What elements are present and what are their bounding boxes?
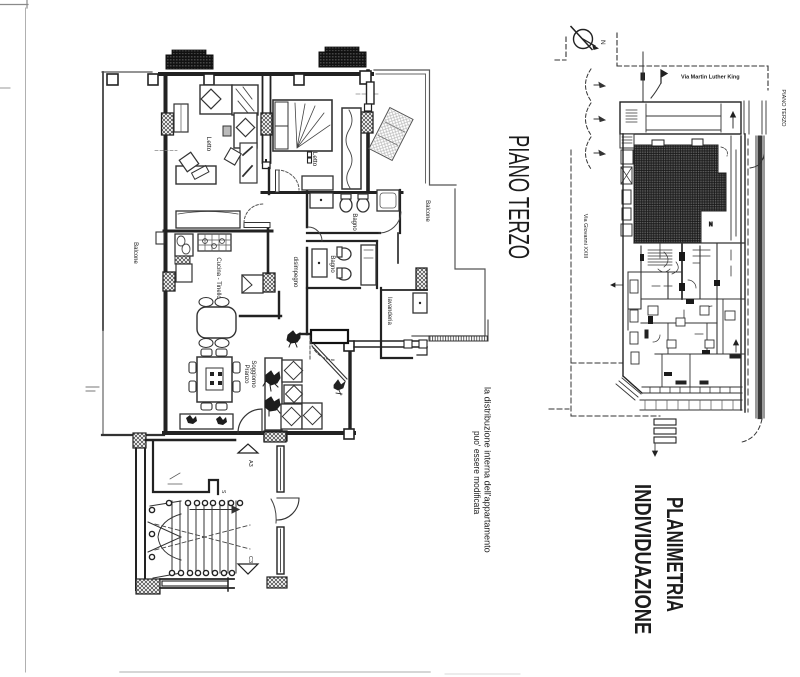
svg-text:la distribuzione interna dell': la distribuzione interna dell'appartamen… <box>482 387 492 553</box>
svg-text:Balcone: Balcone <box>424 200 430 222</box>
svg-text:Bagno: Bagno <box>351 213 357 231</box>
svg-text:Letto: Letto <box>205 137 212 152</box>
svg-text:Soggiorno: Soggiorno <box>250 360 256 388</box>
svg-text:C3: C3 <box>247 556 253 563</box>
svg-text:Bagno: Bagno <box>329 255 335 273</box>
svg-text:puo' essere modificata: puo' essere modificata <box>472 431 483 514</box>
svg-text:Cucina - Tinello: Cucina - Tinello <box>215 257 221 299</box>
svg-text:N: N <box>599 40 606 45</box>
svg-text:N: N <box>709 222 713 228</box>
svg-text:PIANO TERZO: PIANO TERZO <box>780 89 786 127</box>
svg-text:INDIVIDUAZIONE: INDIVIDUAZIONE <box>629 484 655 634</box>
svg-text:Pranzo: Pranzo <box>243 364 249 384</box>
svg-text:lavanderia: lavanderia <box>386 297 392 325</box>
svg-text:Via Giovanni XXIII: Via Giovanni XXIII <box>582 214 588 259</box>
svg-text:Via Martin Luther King: Via Martin Luther King <box>681 75 740 81</box>
svg-text:PLANIMETRIA: PLANIMETRIA <box>661 497 687 612</box>
svg-text:A3: A3 <box>247 460 253 467</box>
svg-text:Balcone: Balcone <box>132 242 138 264</box>
svg-text:S: S <box>220 490 226 494</box>
svg-text:disimpegno: disimpegno <box>292 257 298 288</box>
svg-text:PIANO TERZO: PIANO TERZO <box>502 135 534 259</box>
